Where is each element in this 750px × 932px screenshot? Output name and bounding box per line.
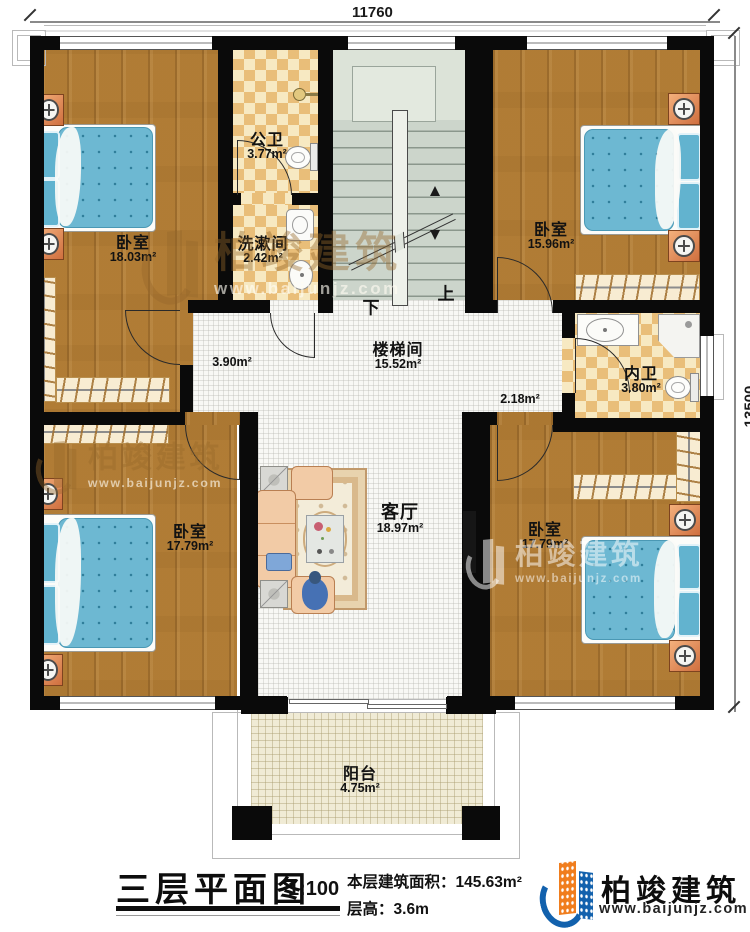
wall [562,418,700,432]
wall [562,313,575,338]
nightstand [669,640,701,672]
wall [478,300,497,313]
hall-right-area: 2.18m² [500,392,540,406]
brand-logo-icon [543,860,595,922]
wall [30,696,60,710]
drawing-scale: 1:100 [288,878,339,901]
dimension-line-right [734,36,736,712]
window [515,696,675,710]
stair-stringer [392,110,408,306]
stair-up-label: 上 [438,280,455,305]
sofa [256,490,296,588]
wall [292,193,318,205]
floor-area-info: 本层建筑面积：145.63m² [347,870,522,892]
balcony-column [462,806,500,840]
person-figure [302,578,328,610]
room-area-ensuite: 3.80m² [621,381,661,395]
dimension-height: 13500 [742,377,750,437]
wall [215,696,287,710]
washing-machine [286,209,314,241]
hall-left-area: 3.90m² [212,355,252,369]
wall [447,696,515,710]
toilet-tank [690,373,699,402]
floor-threshold [562,338,575,393]
side-table [260,580,288,608]
wardrobe [573,474,679,500]
sink [586,318,624,342]
dimension-width: 11760 [348,4,397,21]
room-area-bedroom-tl: 18.03m² [110,250,157,264]
floor-plan: 11760 13500 [0,0,750,932]
nightstand [668,93,700,125]
stair-arrow-up-icon [430,186,440,196]
room-area-washroom: 2.42m² [243,251,283,265]
bed [33,514,156,652]
floor-threshold [497,412,553,425]
room-area-bedroom-br: 17.79m² [522,537,569,551]
armchair [291,466,333,500]
nightstand [669,504,701,536]
floor-height-value: 3.6m [394,901,429,918]
room-area-bedroom-bl: 17.79m² [167,539,214,553]
sink [289,260,313,290]
dimension-line-top [30,21,720,23]
room-area-public-bath: 3.77m² [247,147,287,161]
sliding-door [367,704,447,709]
pillow [677,544,701,590]
title-underline [116,906,340,911]
toilet-tank [310,143,318,171]
floor-height-info: 层高：3.6m [347,897,429,919]
bed [580,125,704,235]
floor-threshold [185,412,240,425]
wall [700,36,714,336]
toilet [665,376,691,399]
window [348,36,455,50]
wall [700,396,714,710]
wardrobe [56,377,170,403]
pillow [677,182,701,230]
stair-down-label: 下 [363,294,380,319]
wall [240,412,258,696]
dimension-tick [24,9,37,22]
room-area-balcony: 4.75m² [340,781,380,795]
drawing-title: 三层平面图 [116,862,311,911]
stair-arrow-down-icon [430,230,440,240]
room-area-stairwell: 15.52m² [375,357,422,371]
wall [30,36,44,710]
cushion [266,553,292,571]
wall [675,696,714,710]
window [60,36,212,50]
dimension-tick [708,9,721,22]
window [700,336,714,396]
wall [553,412,575,432]
balcony-column [232,806,272,840]
wardrobe [575,274,700,301]
window [60,696,215,710]
pillow [677,591,701,637]
wall [318,48,333,313]
floor-height-label: 层高： [347,901,394,918]
title-underline-thin [116,915,340,916]
wall [188,300,270,313]
bed [581,536,704,644]
nightstand [668,230,700,262]
wall [490,412,497,425]
floor-area-value: 145.63m² [456,874,522,891]
corner-trim [711,35,735,61]
room-area-living: 18.97m² [377,521,424,535]
brand-website: www.baijunjz.com [599,901,748,917]
wall [218,48,233,310]
sliding-door [289,699,369,704]
window [527,36,667,50]
wall [553,300,700,313]
wall [30,412,185,425]
tv [463,511,476,573]
wall [465,48,493,313]
wardrobe [676,420,702,502]
bed [34,124,156,232]
room-area-bedroom-tr: 15.96m² [528,237,575,251]
pipe [305,93,318,96]
wall [180,365,193,412]
floor-area-label: 本层建筑面积： [347,874,456,891]
toilet [285,146,311,169]
coffee-table [306,515,344,563]
